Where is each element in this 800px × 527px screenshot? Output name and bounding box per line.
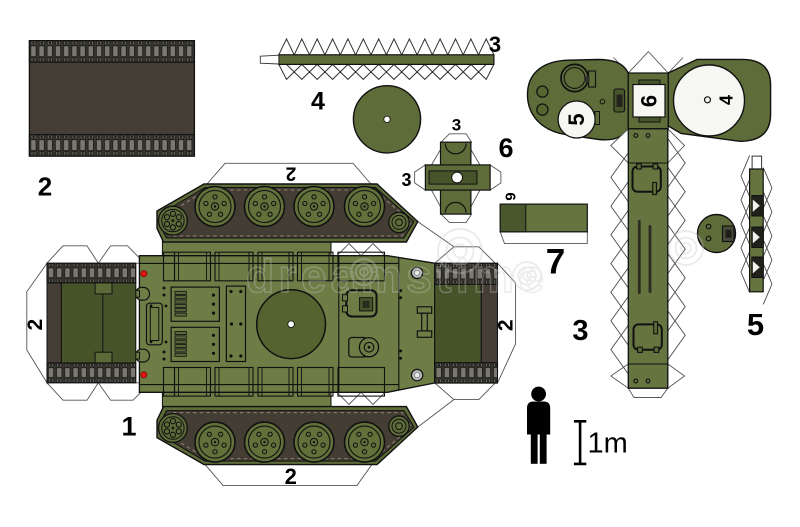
svg-text:5: 5 xyxy=(564,113,589,125)
svg-text:2: 2 xyxy=(24,319,47,331)
svg-text:6: 6 xyxy=(637,95,662,107)
svg-text:6: 6 xyxy=(498,133,513,163)
svg-text:2: 2 xyxy=(286,163,297,184)
svg-text:2: 2 xyxy=(38,172,52,202)
svg-text:4: 4 xyxy=(717,95,737,105)
svg-text:5: 5 xyxy=(747,307,764,342)
svg-text:6: 6 xyxy=(502,192,519,200)
svg-text:1m: 1m xyxy=(588,427,628,459)
svg-text:dreamstime: dreamstime xyxy=(246,250,546,302)
svg-text:2: 2 xyxy=(285,464,297,489)
svg-text:3: 3 xyxy=(452,115,461,134)
svg-text:3: 3 xyxy=(572,315,588,347)
svg-text:7: 7 xyxy=(546,243,565,282)
svg-text:1: 1 xyxy=(121,412,136,442)
svg-text:4: 4 xyxy=(311,88,325,116)
svg-text:3: 3 xyxy=(489,32,501,57)
svg-text:3: 3 xyxy=(401,170,411,190)
